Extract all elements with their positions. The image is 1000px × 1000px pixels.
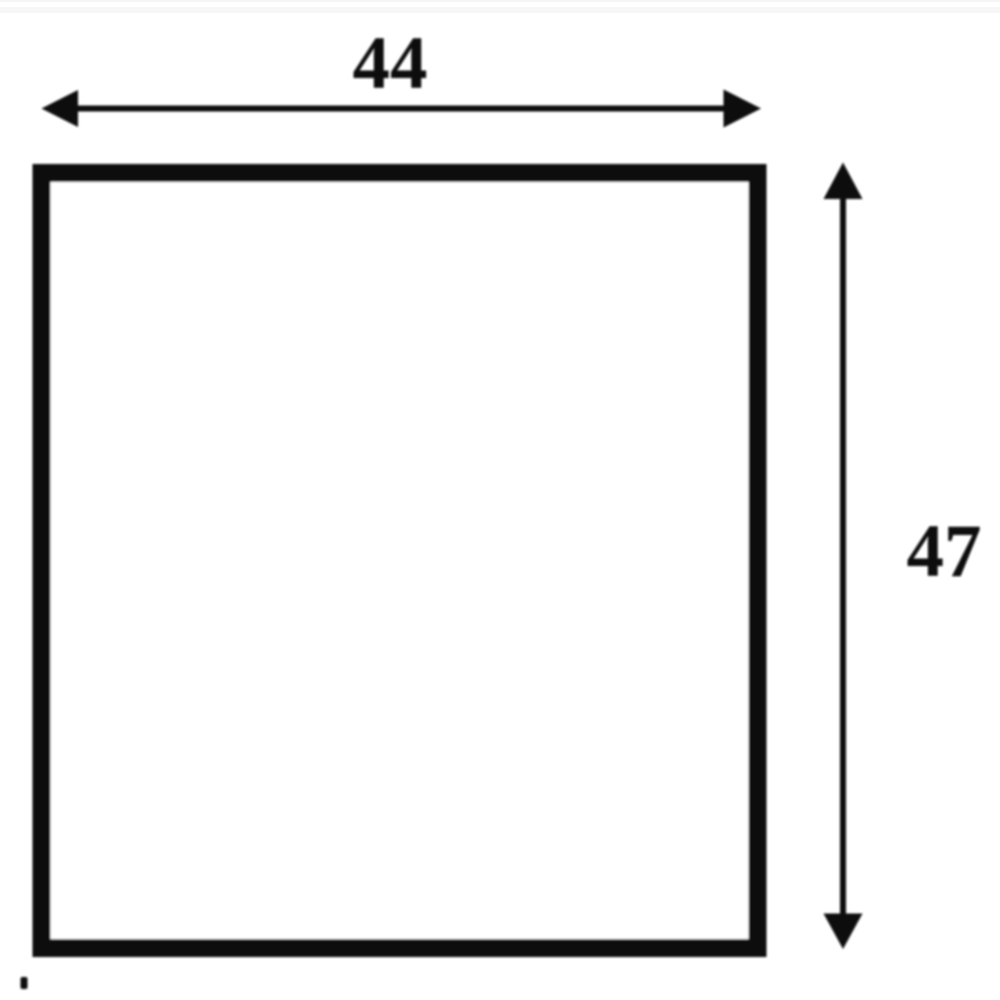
svg-text:47: 47 [907,510,982,593]
svg-text:44: 44 [353,22,428,105]
